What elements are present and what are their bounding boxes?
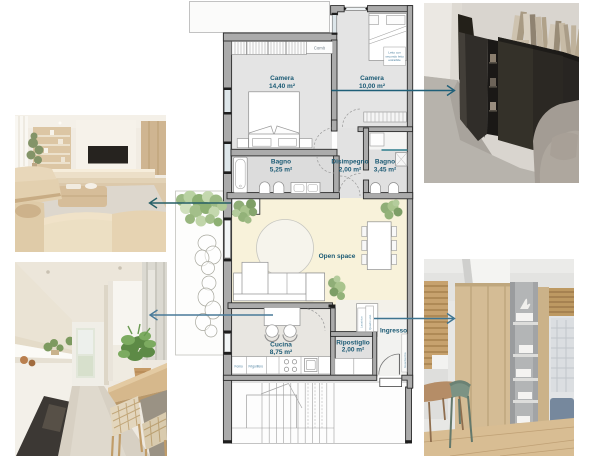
svg-text:10,00 m²: 10,00 m² [359,83,386,90]
svg-text:14,40 m²: 14,40 m² [269,83,296,90]
svg-text:Comò: Comò [314,46,326,51]
svg-text:5,25 m²: 5,25 m² [270,167,293,174]
svg-text:Disimpegno: Disimpegno [331,159,368,166]
svg-text:Cucina: Cucina [270,342,292,349]
svg-text:Guardaroba: Guardaroba [403,352,407,368]
svg-text:8,75 m²: 8,75 m² [270,349,293,356]
svg-text:Camera: Camera [270,75,294,82]
svg-text:3,45 m²: 3,45 m² [374,167,397,174]
svg-text:Camera: Camera [360,75,384,82]
svg-text:2,00 m²: 2,00 m² [339,167,362,174]
svg-text:2,00 m²: 2,00 m² [342,347,365,354]
svg-text:Quadro elet.: Quadro elet. [368,314,372,330]
svg-text:Lavatrice: Lavatrice [360,316,364,328]
svg-text:Frigorifero: Frigorifero [249,365,264,369]
svg-text:Bagno: Bagno [375,159,395,166]
svg-text:Ingresso: Ingresso [380,328,407,335]
svg-text:Ripostiglio: Ripostiglio [336,340,370,347]
svg-text:Open space: Open space [319,253,356,260]
svg-text:estraibile: estraibile [388,58,401,62]
svg-text:Bagno: Bagno [271,159,291,166]
svg-text:Forno: Forno [235,365,244,369]
